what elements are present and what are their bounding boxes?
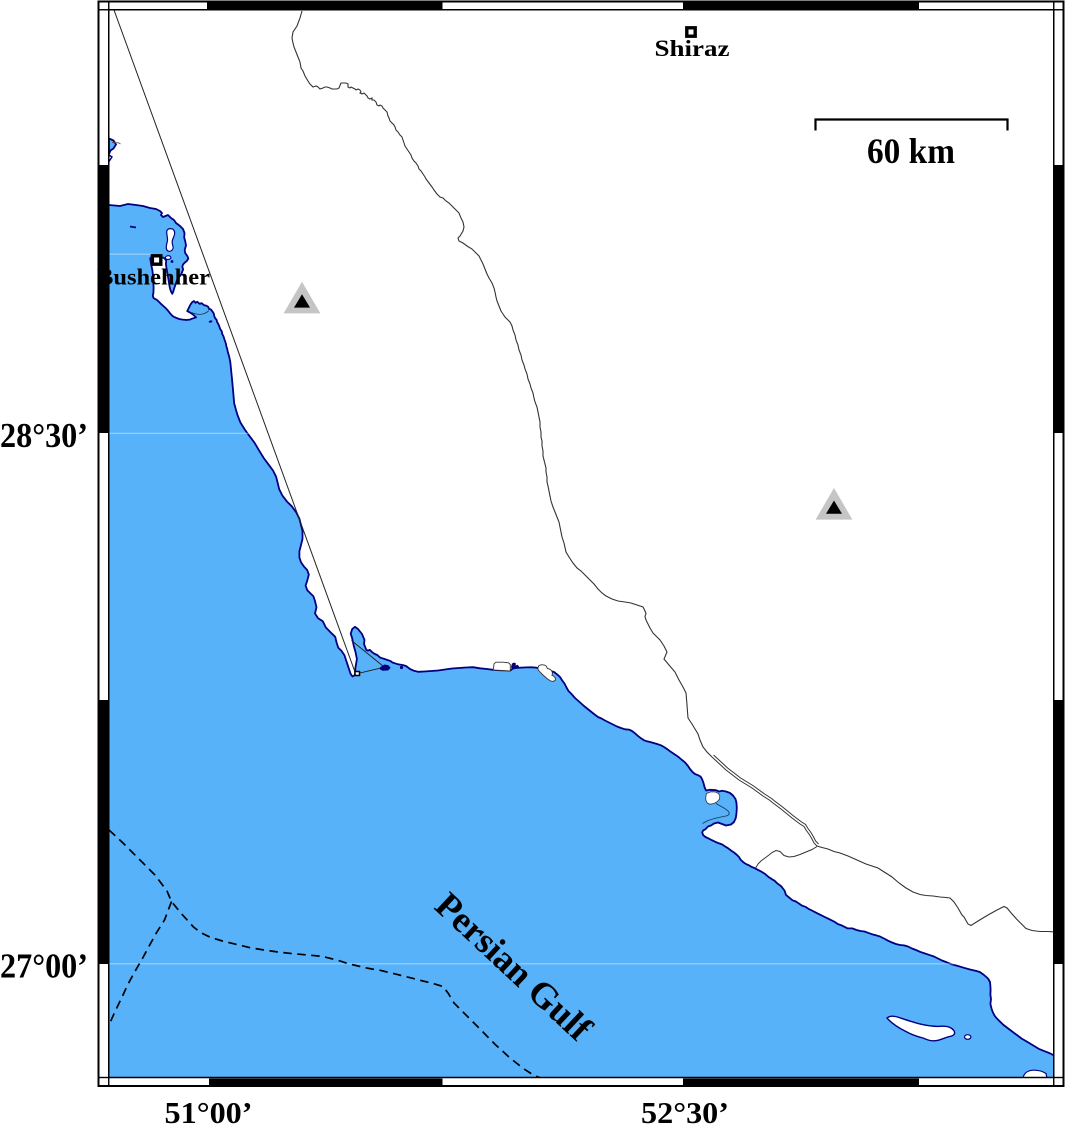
svg-text:52°30’: 52°30’	[641, 1095, 729, 1126]
svg-text:Shiraz: Shiraz	[655, 36, 730, 62]
svg-text:28°30’: 28°30’	[0, 416, 88, 455]
svg-text:27°00’: 27°00’	[0, 947, 88, 986]
svg-text:60 km: 60 km	[867, 131, 955, 171]
svg-text:51°00’: 51°00’	[165, 1095, 253, 1126]
svg-text:Bushehher: Bushehher	[97, 265, 210, 291]
